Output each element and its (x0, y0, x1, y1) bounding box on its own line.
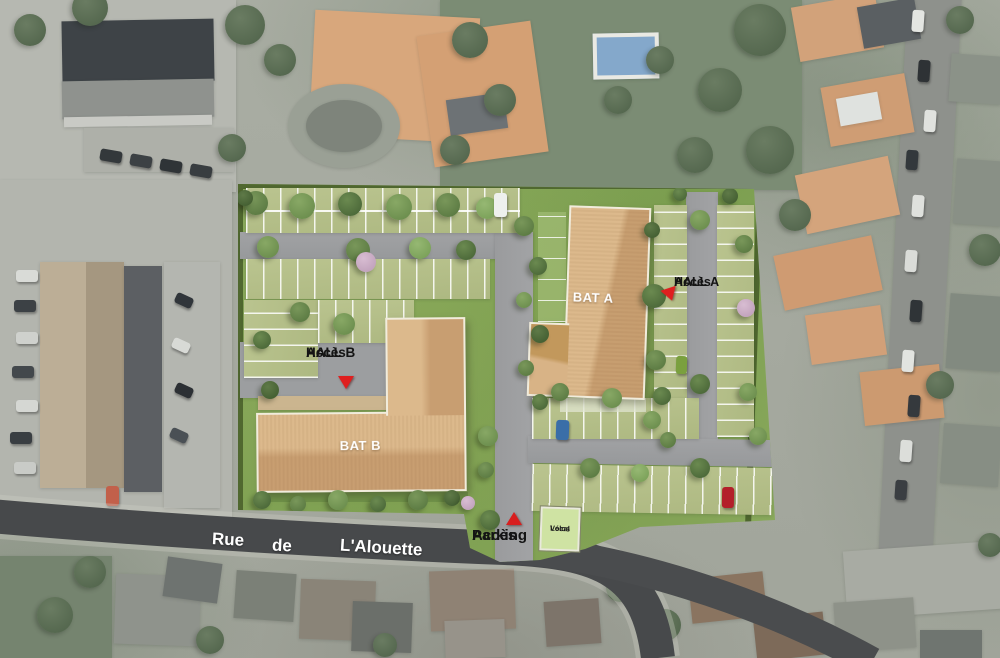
green-car (676, 356, 688, 374)
street-name-word-de: de (271, 535, 292, 556)
acces-parking-marker-icon (506, 512, 522, 525)
acces-hall-b-marker-icon (338, 376, 354, 389)
street-name-word-rue: Rue (211, 529, 244, 551)
site-plan-map: BAT B BAT A Local Vélos Accès HALL A Acc… (0, 0, 1000, 658)
red-car (722, 487, 734, 508)
local-velos-label-2: Vélos (550, 524, 570, 534)
white-car (494, 193, 507, 217)
road-curve-southeast (505, 548, 872, 658)
local-velos-box: Local Vélos (539, 506, 581, 551)
blue-car (556, 420, 570, 440)
